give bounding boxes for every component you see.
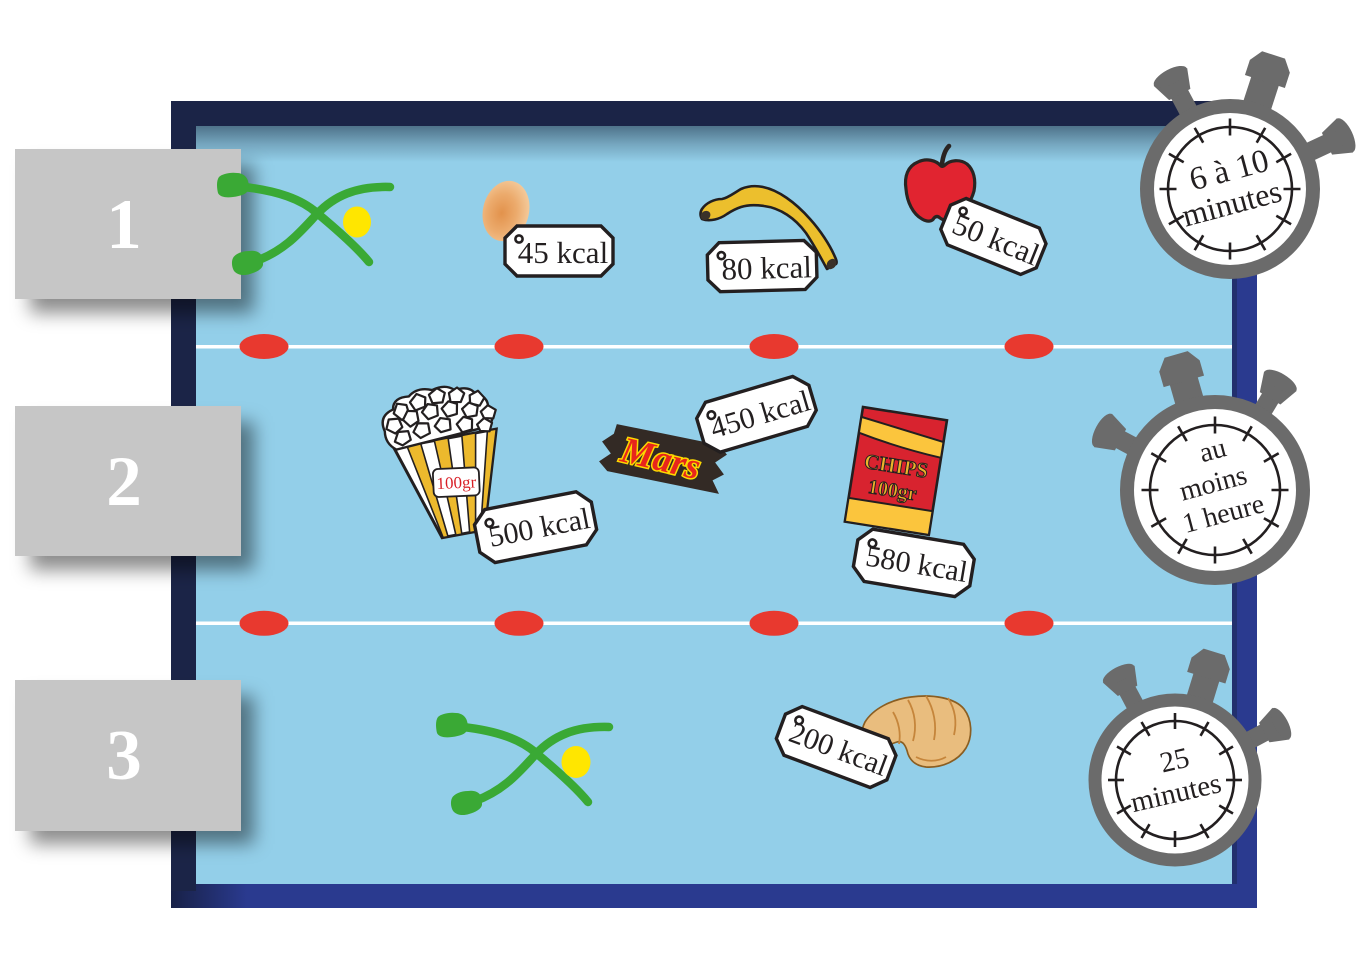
svg-text:3: 3	[106, 717, 142, 795]
svg-text:100gr: 100gr	[436, 472, 477, 493]
svg-text:2: 2	[106, 443, 142, 521]
svg-text:1: 1	[106, 186, 142, 264]
svg-text:80 kcal: 80 kcal	[721, 249, 812, 286]
svg-text:45 kcal: 45 kcal	[518, 235, 608, 270]
